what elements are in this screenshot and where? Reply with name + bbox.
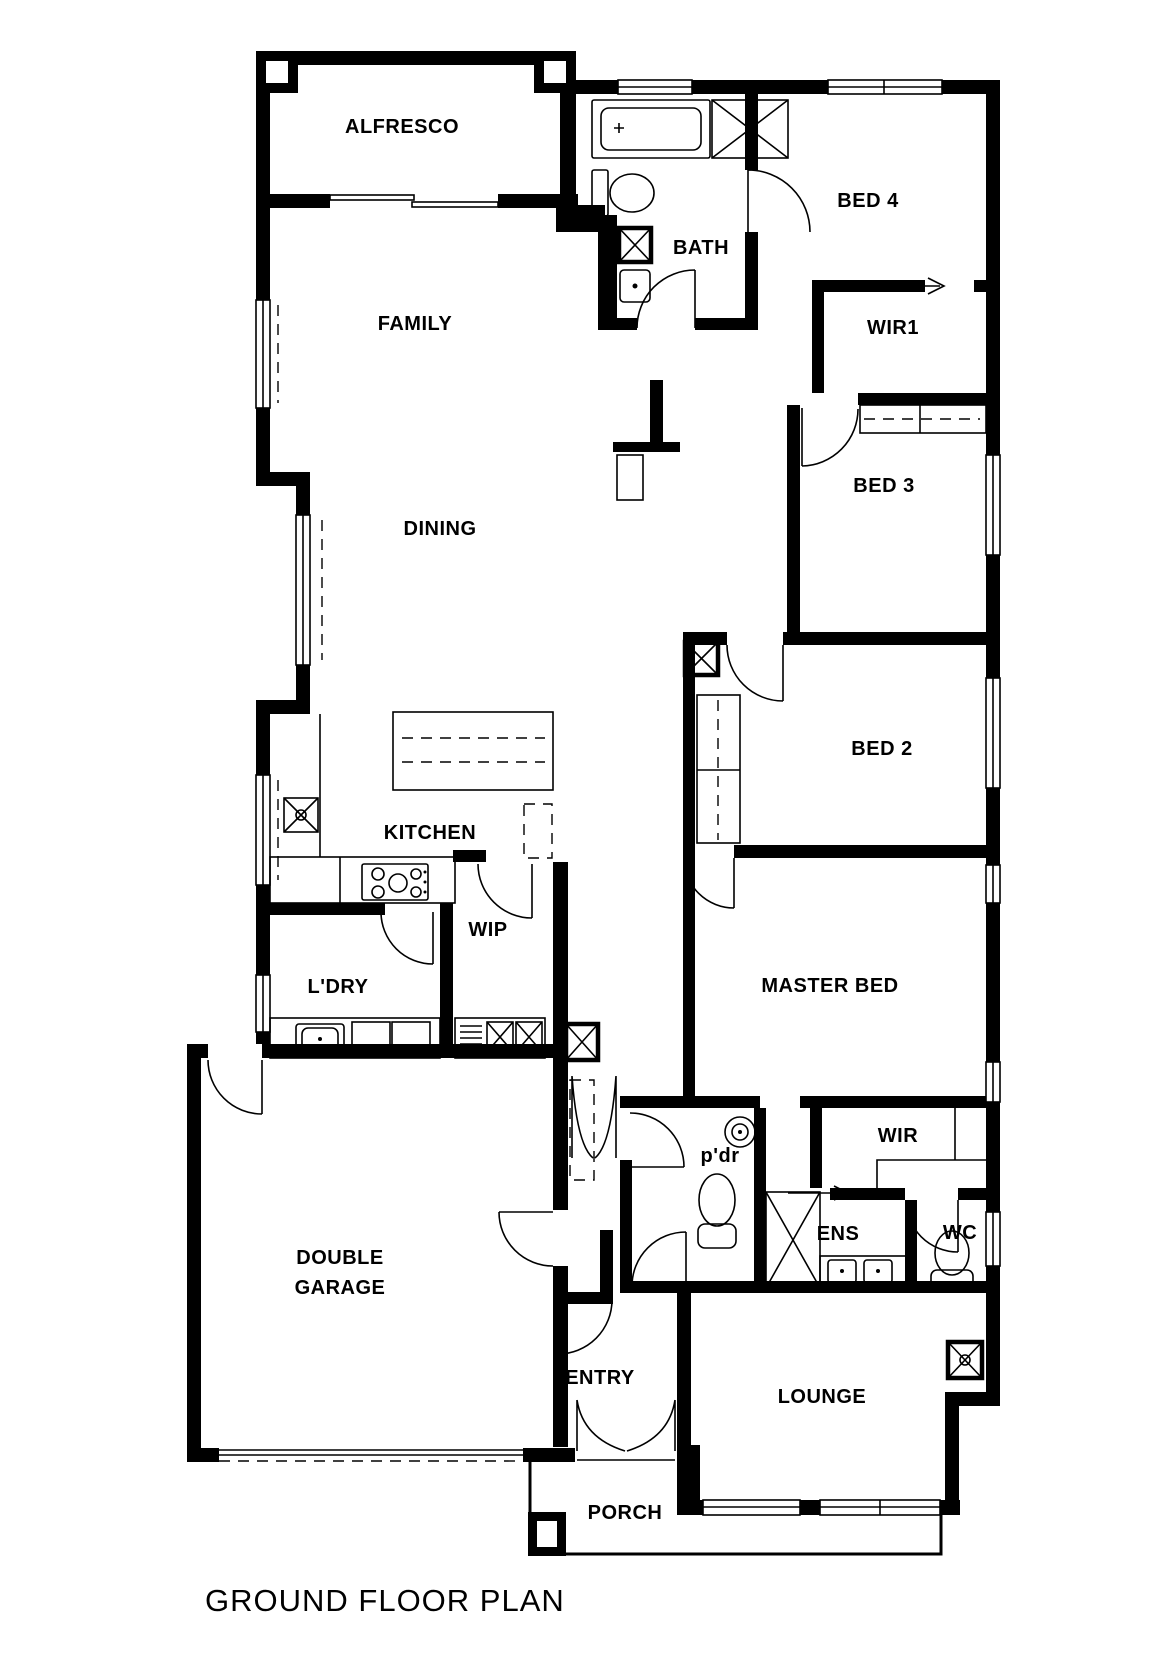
basin-icon xyxy=(725,1117,755,1147)
bed3-robe xyxy=(860,405,986,433)
pdr-door xyxy=(630,1113,684,1167)
room-label-garage-line-2: GARAGE xyxy=(295,1277,386,1299)
room-label-porch: PORCH xyxy=(588,1502,663,1524)
room-label-bath: BATH xyxy=(673,237,729,259)
toilet-icon-2 xyxy=(698,1174,736,1248)
plan-title: GROUND FLOOR PLAN xyxy=(205,1583,565,1618)
wip-door xyxy=(478,864,532,918)
bathtub-icon xyxy=(592,100,710,158)
floor-plan-canvas: ALFRESCOBATHBED 4WIR1FAMILYDININGBED 3BE… xyxy=(0,0,1170,1654)
room-label-bed-3: BED 3 xyxy=(853,475,914,497)
entry-double-doors xyxy=(577,1400,675,1451)
windows xyxy=(256,80,1000,1515)
linen-cupboard-icon xyxy=(619,228,651,262)
ens-arrow-icon xyxy=(788,1186,848,1200)
garage-internal-door xyxy=(499,1212,553,1266)
hall-niche xyxy=(617,455,643,500)
room-label-wir1: WIR1 xyxy=(867,317,919,339)
room-label-wir: WIR xyxy=(878,1125,918,1147)
island-bench xyxy=(393,712,553,790)
garage-door xyxy=(219,1450,523,1461)
room-label-pdr: p'dr xyxy=(701,1145,740,1167)
sliding-door-icon xyxy=(330,195,498,207)
bed3-door xyxy=(802,408,858,466)
room-label-bed-2: BED 2 xyxy=(851,738,912,760)
bed2-door xyxy=(727,645,783,701)
room-label-kitchen: KITCHEN xyxy=(384,822,476,844)
garage-side-door xyxy=(208,1060,262,1114)
room-label-wc: WC xyxy=(943,1222,977,1244)
room-label-master-bed: MASTER BED xyxy=(761,975,898,997)
room-label-dining: DINING xyxy=(404,518,477,540)
room-label-lounge: LOUNGE xyxy=(778,1386,867,1408)
cooktop-icon xyxy=(362,864,428,900)
lounge-door xyxy=(632,1232,686,1286)
room-label-wip: WIP xyxy=(468,919,507,941)
appliance-niche-icon xyxy=(948,1342,982,1378)
floor-plan-page: ALFRESCOBATHBED 4WIR1FAMILYDININGBED 3BE… xyxy=(0,0,1170,1654)
room-label-ens: ENS xyxy=(817,1223,860,1245)
fridge-alcove xyxy=(524,804,552,858)
room-label-entry: ENTRY xyxy=(565,1367,635,1389)
bath-door xyxy=(637,270,695,328)
kitchen-sink-icon xyxy=(284,798,318,832)
bed4-door xyxy=(748,170,810,232)
bed2-robe xyxy=(697,695,740,843)
room-label-family: FAMILY xyxy=(378,313,453,335)
shower-icon-2 xyxy=(766,1192,820,1288)
room-label-bed-4: BED 4 xyxy=(837,190,899,212)
laundry-door xyxy=(381,912,433,964)
room-label-garage-line-1: DOUBLE xyxy=(296,1247,383,1269)
room-label-alfresco: ALFRESCO xyxy=(345,116,459,138)
room-label-ldry: L'DRY xyxy=(308,976,369,998)
hot-water-unit-icon xyxy=(566,1024,598,1060)
wir-shelves xyxy=(877,1108,986,1188)
